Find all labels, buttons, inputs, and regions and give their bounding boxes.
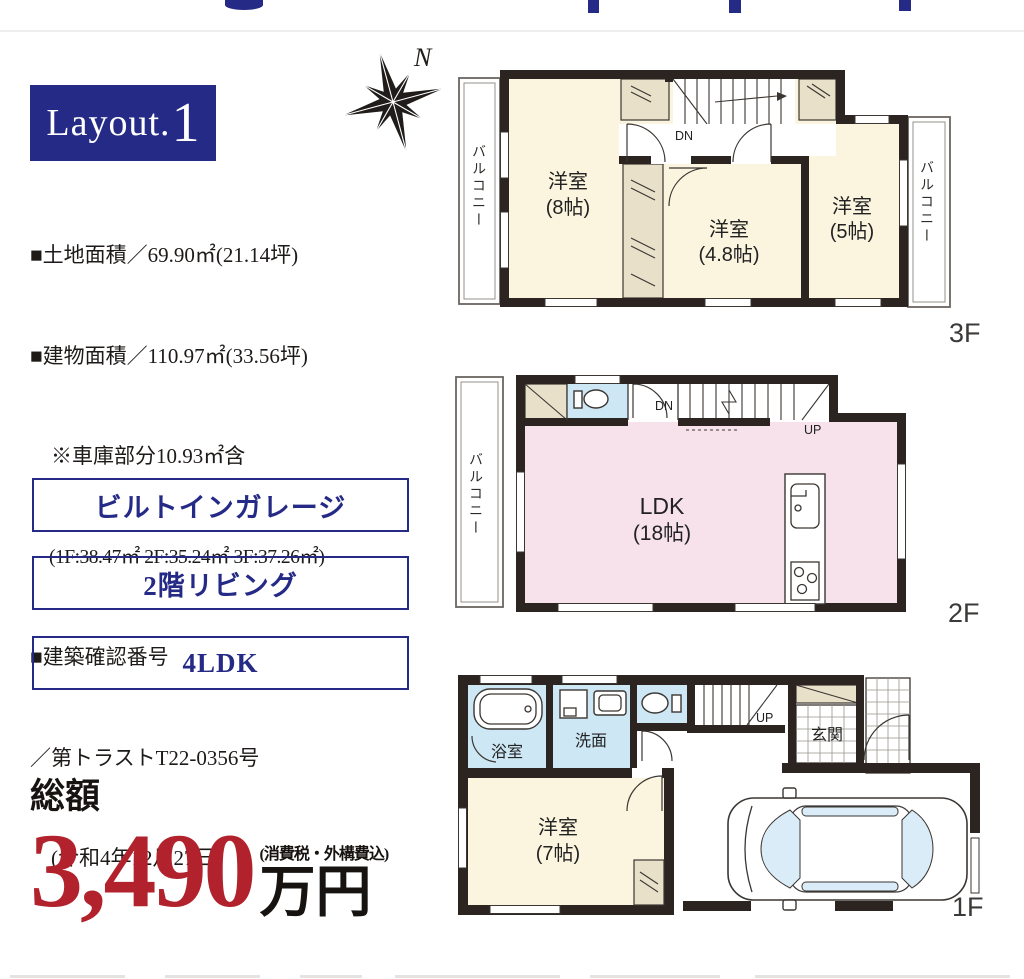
cropped-bottom-line xyxy=(395,975,560,978)
cropped-bottom-line xyxy=(165,975,260,978)
cropped-bottom-line xyxy=(300,975,362,978)
wall xyxy=(500,70,509,307)
car-top-view xyxy=(728,788,967,910)
ldk-floor xyxy=(525,422,897,603)
window xyxy=(971,838,979,893)
cropped-text-fragment xyxy=(588,0,599,13)
price-unit: 万円 xyxy=(260,864,389,923)
sink-icon xyxy=(594,691,626,715)
entrance-label: 玄関 xyxy=(811,726,843,744)
hallway xyxy=(619,124,836,156)
wash-label: 洗面 xyxy=(575,732,607,750)
compass-rose: N xyxy=(338,40,450,166)
wall xyxy=(664,768,674,915)
wall xyxy=(458,675,468,915)
toilet-icon xyxy=(574,390,608,408)
wall xyxy=(525,418,628,426)
washer-icon xyxy=(560,690,587,718)
price-tax-note: (消費税・外構費込) xyxy=(260,840,389,864)
feature-box-4ldk: 4LDK xyxy=(32,636,409,690)
garage-wall-segment xyxy=(683,901,751,911)
stairs-down-label: DN xyxy=(655,399,673,413)
balcony-right-label: バルコニー xyxy=(917,160,937,245)
floorplan-3f: DN 洋室 (8帖) 洋室 (4.8帖) 洋室 (5帖) 3F バルコニー バル… xyxy=(455,52,1010,352)
wall xyxy=(637,723,687,731)
room-label-west48-size: (4.8帖) xyxy=(698,243,759,266)
feature-label: 2階リビング xyxy=(143,564,298,603)
toilet-icon xyxy=(642,693,681,713)
room-label-west5-size: (5帖) xyxy=(830,220,874,243)
garage-wall-segment xyxy=(835,901,893,911)
room-label-ldk-name: LDK xyxy=(640,493,685,519)
property-line-building-area: ■建物面積／110.97㎡(33.56坪) xyxy=(30,340,450,374)
kitchen-island xyxy=(785,474,825,604)
closet xyxy=(799,79,836,120)
price-block: 総額 3,490 (消費税・外構費込) 万円 xyxy=(30,768,388,926)
floor-label-3f: 3F xyxy=(949,318,981,348)
cropped-bottom-line xyxy=(10,975,125,978)
layout-badge-text: Layout. xyxy=(46,101,170,145)
compass-north-label: N xyxy=(413,43,433,72)
room-label-west5-name: 洋室 xyxy=(832,195,872,218)
wall xyxy=(801,156,809,298)
cropped-text-fragment xyxy=(729,0,741,13)
wall xyxy=(970,763,980,833)
price-amount: 3,490 xyxy=(30,815,254,926)
room-label-west48-name: 洋室 xyxy=(709,218,749,241)
wall xyxy=(630,685,637,768)
floorplan-1f: 浴室 洗面 玄関 UP 洋室 (7帖) 1F xyxy=(450,658,1015,958)
floorplan-1f-svg: 浴室 洗面 玄関 UP 洋室 (7帖) 1F xyxy=(450,658,1015,958)
wall xyxy=(788,675,796,763)
property-line-land-area: ■土地面積／69.90㎡(21.14坪) xyxy=(30,239,450,273)
bathtub-icon xyxy=(474,689,542,729)
wall xyxy=(687,725,785,733)
feature-label: 4LDK xyxy=(182,648,258,679)
cropped-text-fragment xyxy=(225,0,263,10)
balcony-left-label: バルコニー xyxy=(466,452,486,537)
balcony-left-label: バルコニー xyxy=(469,144,489,229)
feature-box-2f-living: 2階リビング xyxy=(32,556,409,610)
wall xyxy=(516,375,838,384)
floor-label-2f: 2F xyxy=(948,598,980,628)
stairs-up-label: UP xyxy=(804,423,821,437)
room-label-ldk-size: (18帖) xyxy=(633,522,691,545)
real-estate-flyer: Layout.1 N ■土地面積／69.90㎡(21.14坪) ■建物面積／11… xyxy=(0,0,1024,979)
wall xyxy=(665,70,673,82)
wall xyxy=(546,685,553,768)
bath-label: 浴室 xyxy=(491,743,523,761)
floor-label-1f: 1F xyxy=(952,892,984,922)
room-label-west7-size: (7帖) xyxy=(536,842,580,865)
cropped-bottom-line xyxy=(590,975,720,978)
feature-box-built-in-garage: ビルトインガレージ xyxy=(32,478,409,532)
wall xyxy=(687,675,695,733)
property-line-garage-note: ※車庫部分10.93㎡含 xyxy=(30,440,450,474)
stairwell xyxy=(673,79,795,124)
wall xyxy=(782,763,980,773)
cropped-bottom-line xyxy=(755,975,1010,978)
wall xyxy=(829,375,838,422)
room-label-west8-name: 洋室 xyxy=(548,170,588,193)
layout-badge: Layout.1 xyxy=(30,85,216,161)
floorplan-2f-svg: DN UP LDK (18帖) 2F xyxy=(450,372,1005,640)
wall xyxy=(678,418,770,426)
room-label-west8-size: (8帖) xyxy=(546,196,590,219)
closet xyxy=(634,860,664,905)
stairs-up-label: UP xyxy=(756,711,773,725)
room-label-west7-name: 洋室 xyxy=(538,816,578,839)
cropped-text-fragment xyxy=(899,0,911,11)
feature-label: ビルトインガレージ xyxy=(95,486,346,525)
entrance-porch xyxy=(864,678,910,773)
divider-line xyxy=(0,30,1024,32)
wall xyxy=(619,156,809,164)
stairs-down-label: DN xyxy=(675,129,693,143)
layout-badge-number: 1 xyxy=(172,95,200,151)
wall xyxy=(856,675,864,763)
closet-column xyxy=(623,164,663,298)
wall xyxy=(838,413,906,422)
floorplan-2f: DN UP LDK (18帖) 2F バルコニー xyxy=(450,372,1005,640)
